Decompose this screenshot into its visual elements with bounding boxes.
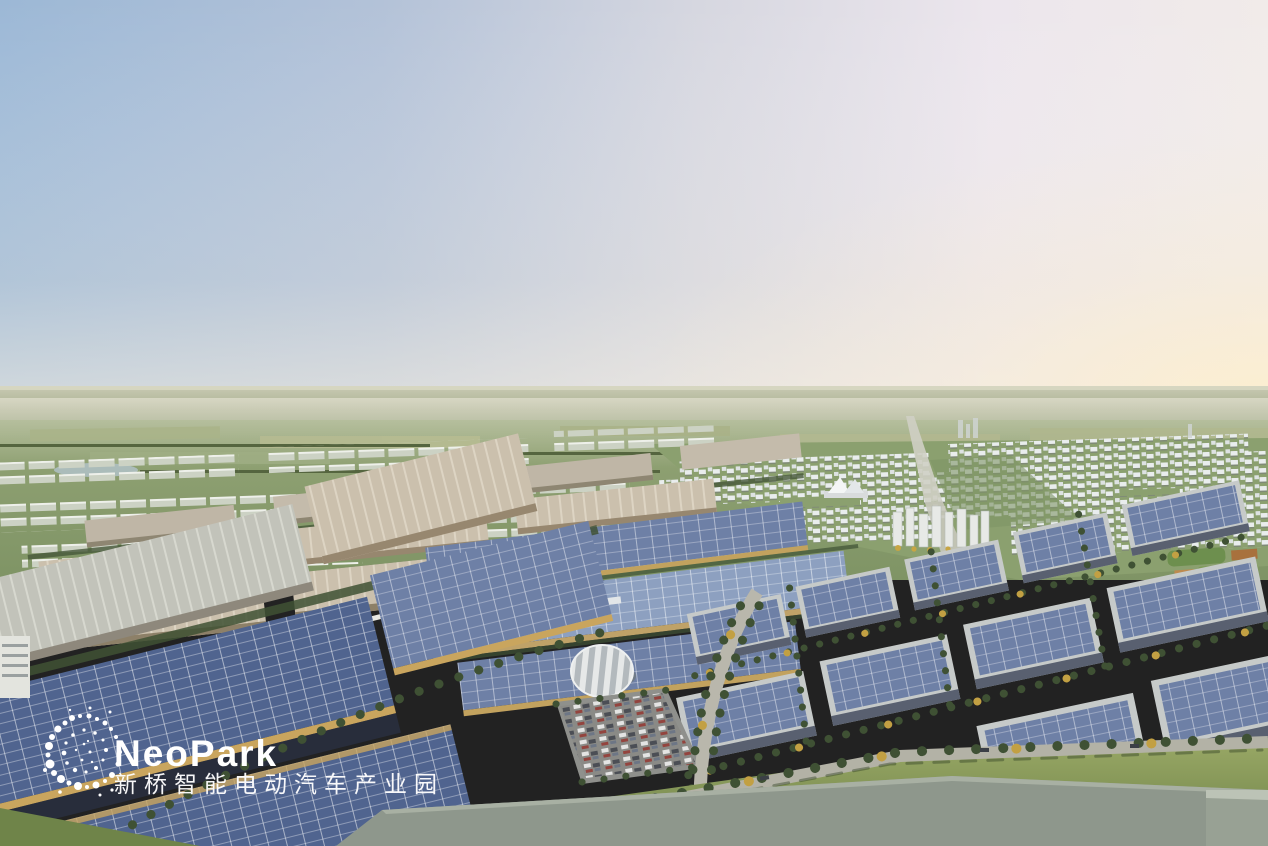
sky xyxy=(0,0,1268,400)
scene-canvas: NeoPark 新桥智能电动汽车产业园 xyxy=(0,0,1268,846)
brand-tagline: 新桥智能电动汽车产业园 xyxy=(114,771,444,797)
concrete-pads xyxy=(336,776,1268,846)
brand-name: NeoPark xyxy=(114,733,278,774)
left-office-block xyxy=(0,636,30,698)
low-gray-building xyxy=(1206,790,1268,846)
neopark-aerial-render: NeoPark 新桥智能电动汽车产业园 xyxy=(0,0,1268,846)
